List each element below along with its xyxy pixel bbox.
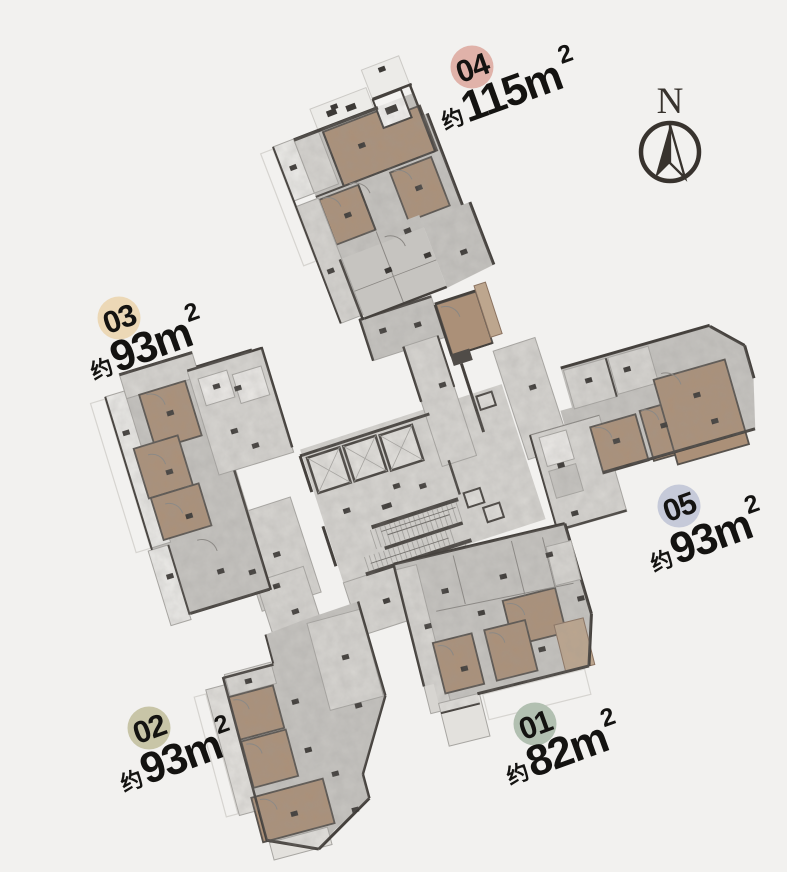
svg-text:N: N: [657, 81, 684, 122]
